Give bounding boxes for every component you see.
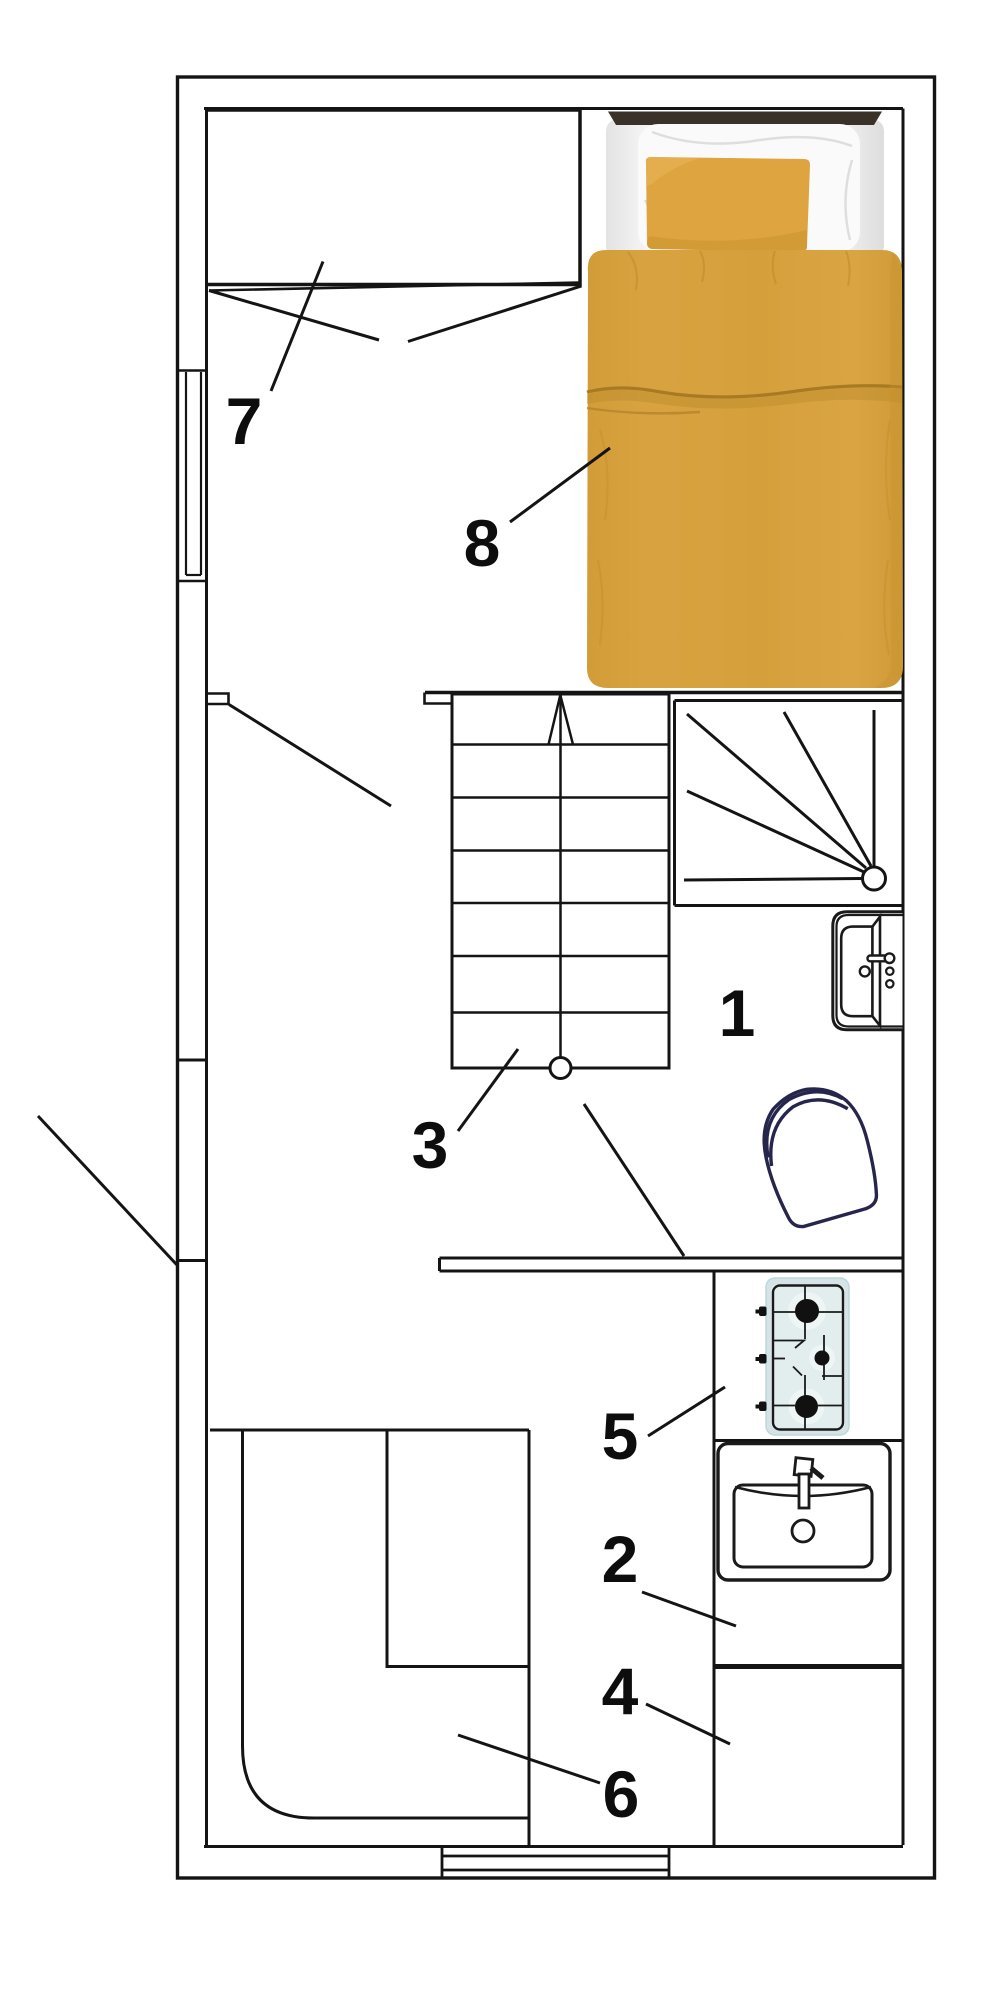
svg-text:6: 6 xyxy=(603,1757,640,1831)
svg-text:7: 7 xyxy=(226,384,263,458)
svg-text:1: 1 xyxy=(719,976,756,1050)
svg-text:2: 2 xyxy=(602,1522,639,1596)
svg-text:4: 4 xyxy=(602,1654,639,1728)
svg-text:5: 5 xyxy=(602,1399,639,1473)
svg-text:3: 3 xyxy=(412,1108,449,1182)
svg-text:8: 8 xyxy=(464,506,501,580)
